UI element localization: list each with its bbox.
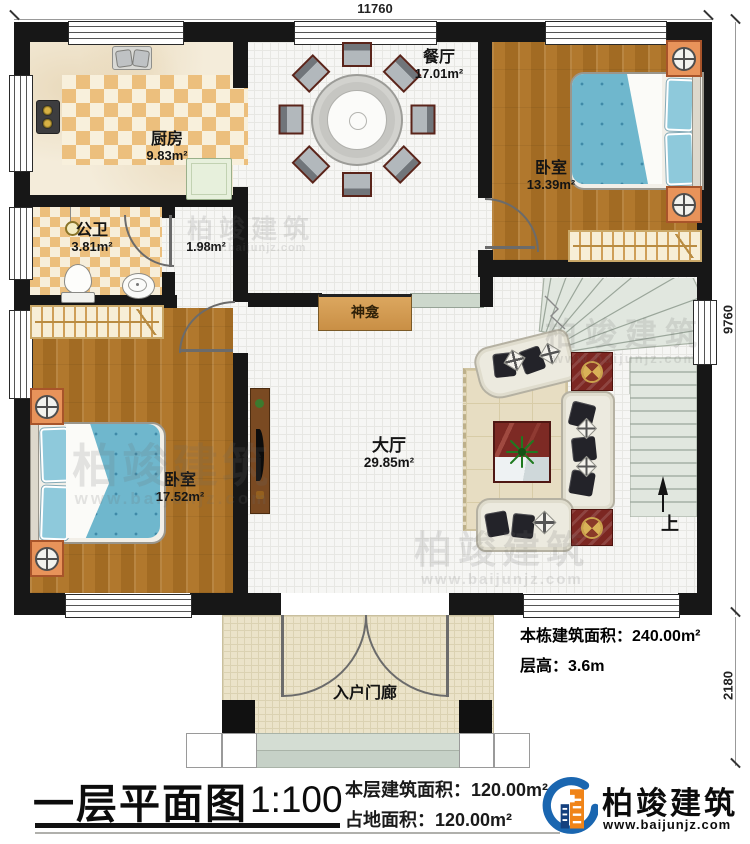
medallion-icon [579,359,604,384]
stairs-up-label: 上 [654,514,686,534]
nightstand [30,540,64,577]
wall [697,363,712,615]
stove [36,100,60,134]
headboard [30,422,39,542]
scale-label: 1:100 [250,779,343,821]
title-underline-thin [35,832,560,834]
wall [14,22,30,75]
bedroom-left-label: 卧室 17.52m² [133,472,227,504]
window [65,594,192,618]
lamp-icon [35,547,59,571]
kitchen-sink [112,46,152,70]
porch-label: 入户门廊 [303,685,427,703]
brand-logo-icon [542,776,598,838]
pillow [665,133,695,186]
tv-cabinet [250,388,270,514]
porch-column [222,700,255,733]
plant-icon [504,434,540,470]
window [693,300,717,365]
corridor-area-label: 1.98m² [168,240,244,254]
wall [14,170,30,207]
dimension-right-lower: 2180 [721,664,736,708]
wardrobe [568,230,702,262]
land-area-note: 占地面积：120.00m² [345,806,512,832]
wall [233,42,248,88]
brand-url: www.baijunjz.com [603,817,731,832]
headboard [692,72,701,188]
sofa [476,498,574,552]
window [545,21,667,45]
bedroom-left-door-leaf [179,349,233,352]
end-table [571,352,613,391]
toilet-tank [61,292,95,303]
wall [248,293,322,307]
dimension-right-upper: 9760 [721,298,736,342]
bedroom-right-door-leaf [485,246,535,249]
entry-door-left-leaf [281,615,284,697]
step-side [494,733,530,768]
sofa [561,391,615,511]
building-area-note: 本栋建筑面积：240.00m² [520,622,701,646]
dining-chair [342,172,372,197]
entry-step [255,750,461,768]
dining-chair [411,105,436,135]
tv-icon [256,429,264,481]
dining-chair [279,105,304,135]
shrine-label: 神龛 [319,305,411,321]
step-side [186,733,222,768]
lamp-icon [672,193,696,217]
refrigerator [186,158,232,200]
living-label: 大厅 29.85m² [341,436,437,470]
plant-icon [255,399,264,408]
wall [190,593,281,615]
pillow [665,79,695,132]
dining-chair [342,42,372,67]
lamp-icon [672,47,696,71]
window [523,594,680,618]
dining-label: 餐厅 17.01m² [393,49,485,81]
floor-height-note: 层高：3.6m [520,652,604,676]
wall [449,593,523,615]
entry-door-right-leaf [446,615,449,697]
porch-column [459,700,492,733]
coffee-table [493,421,551,483]
decor-item [256,491,264,499]
porch-column-base [222,733,257,768]
wall [14,397,30,615]
title-underline [35,823,340,828]
bath-label: 公卫 3.81m² [47,222,137,254]
window [9,207,33,280]
wall [14,593,65,615]
wardrobe [30,305,164,339]
wall [678,593,712,615]
dining-table [311,74,403,166]
window [9,75,33,172]
bedroom-right-label: 卧室 13.39m² [505,160,597,192]
nightstand [666,186,702,223]
floor-plan-sheet: 上 [0,0,750,844]
dimension-line [14,19,712,20]
kitchen-label: 厨房 9.83m² [122,131,212,163]
bath-sink [122,273,155,299]
sheet-title: 一层平面图 [33,770,248,830]
lamp-icon [35,395,59,419]
medallion-icon [579,515,604,540]
wall [478,260,712,277]
wall [182,22,294,42]
wall [435,22,545,42]
toilet [64,264,92,294]
half-wall [410,293,484,308]
wall [233,353,248,593]
end-table [571,509,613,546]
nightstand [30,388,64,425]
shrine: 神龛 [318,294,412,331]
window [68,21,184,45]
dimension-top: 11760 [330,1,420,16]
floor-area-note: 本层建筑面积：120.00m² [345,776,548,802]
porch-column-base [459,733,494,768]
nightstand [666,40,702,77]
